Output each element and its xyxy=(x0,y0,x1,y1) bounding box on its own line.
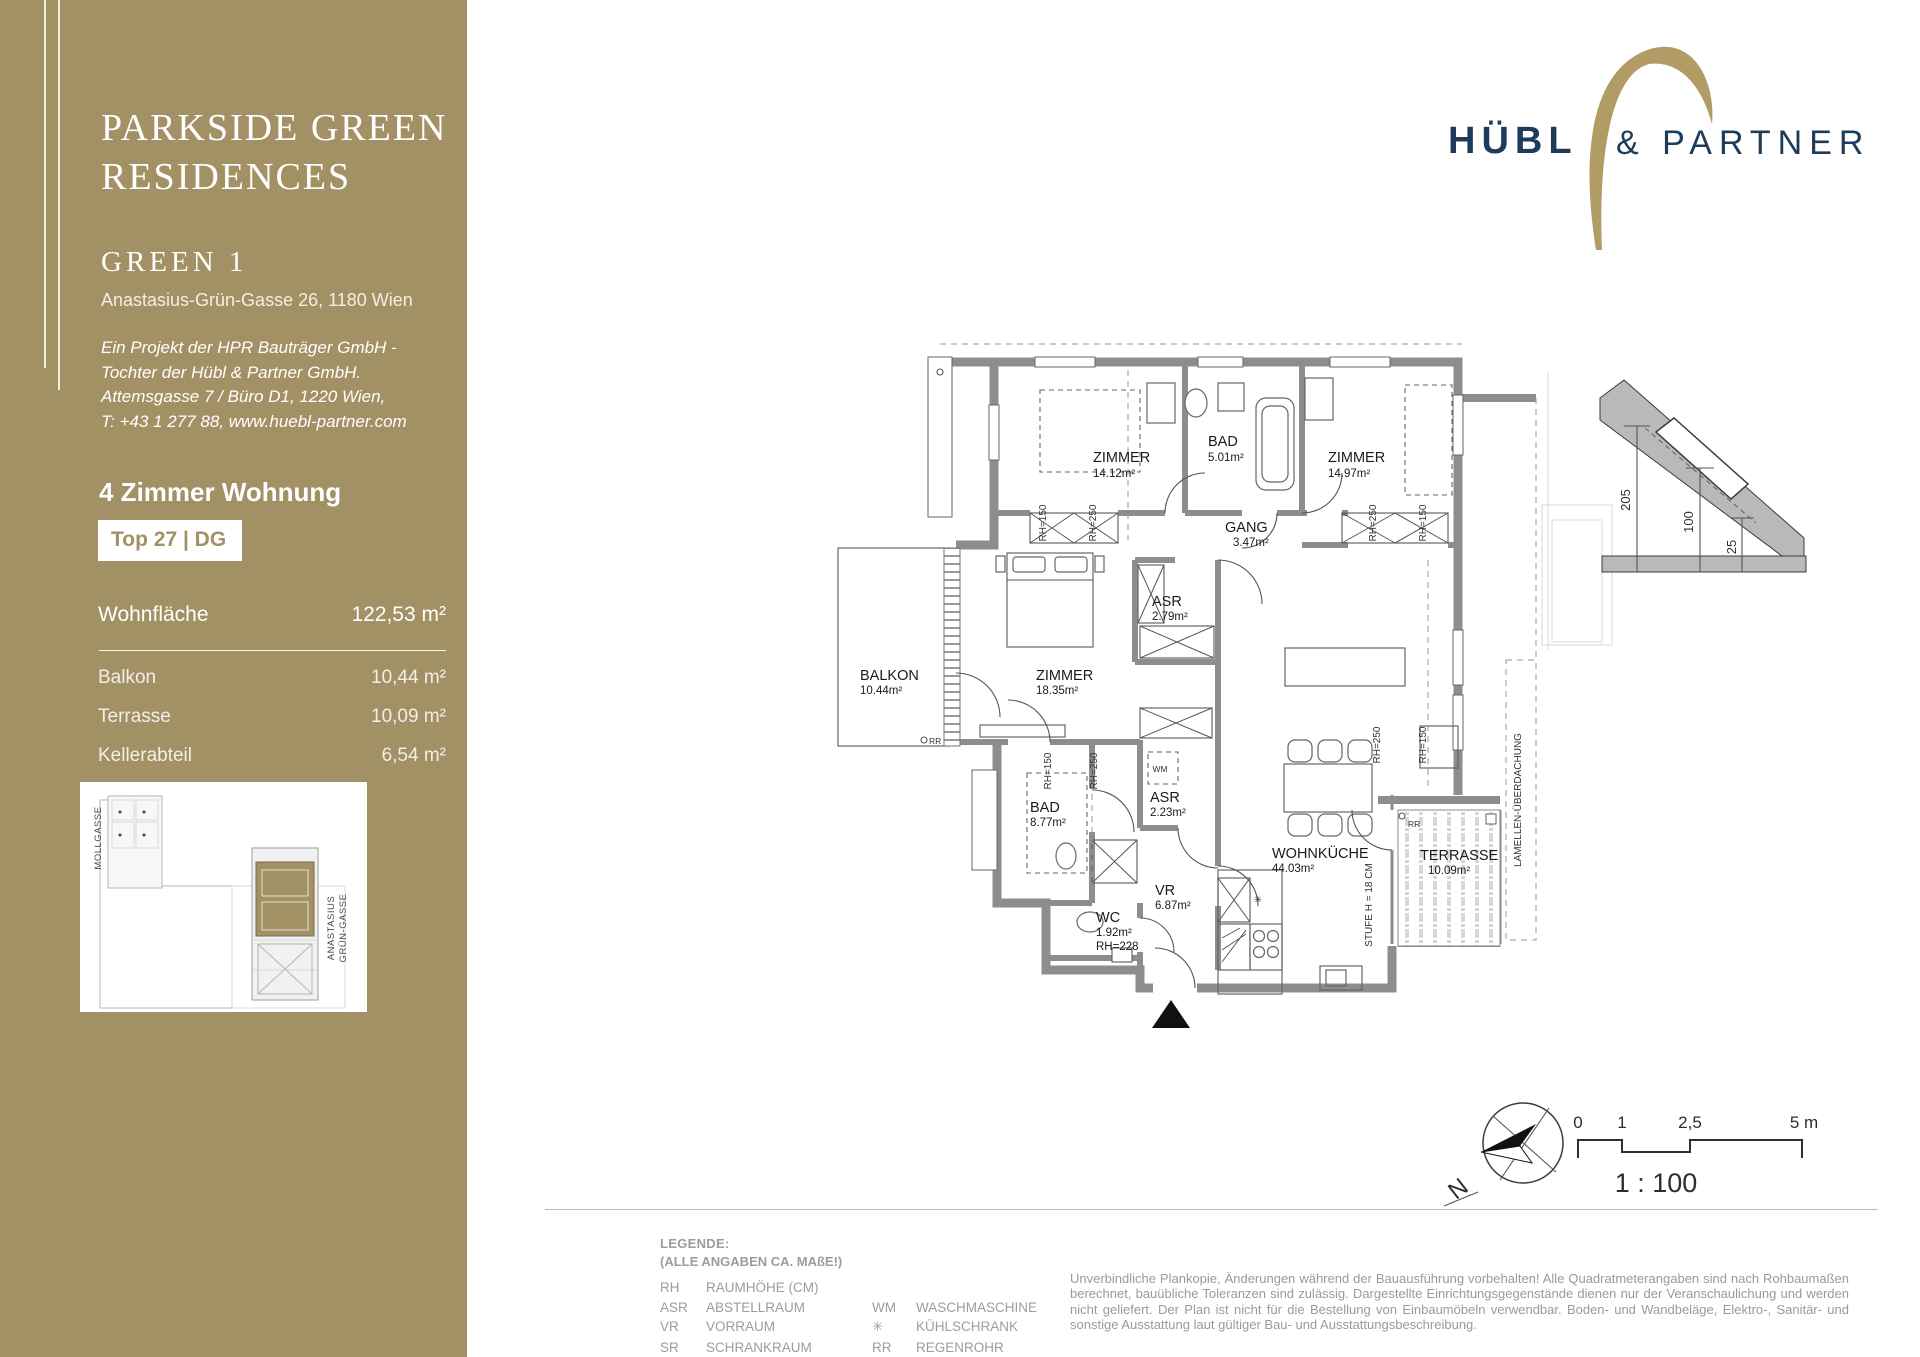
footer-divider xyxy=(545,1209,1878,1210)
terrace xyxy=(1398,660,1536,946)
legend-abbr: RH xyxy=(660,1280,706,1295)
furniture xyxy=(980,378,1458,994)
apartment-type: 4 Zimmer Wohnung xyxy=(99,477,341,508)
room-label: ASR xyxy=(1150,790,1180,806)
doors xyxy=(956,473,1392,994)
lamella-roof-annotation: LAMELLEN-ÜBERDACHUNG xyxy=(1512,733,1524,867)
legend-abbr: RR xyxy=(872,1340,916,1355)
rain-pipe-label: RR xyxy=(1408,819,1420,829)
room-label: ZIMMER xyxy=(1036,668,1093,684)
room-area: 44.03m² xyxy=(1272,863,1314,875)
legend-abbr: WM xyxy=(872,1300,916,1315)
legend-title: LEGENDE: xyxy=(660,1236,1037,1251)
unit-badge: Top 27 | DG xyxy=(98,520,242,561)
room-area: 10.44m² xyxy=(860,685,902,697)
rh-annotation: RH=250 xyxy=(1089,752,1100,789)
balcony xyxy=(838,548,960,746)
legend-term: KÜHLSCHRANK xyxy=(916,1319,1037,1335)
room-labels: ZIMMER 14.12m² BAD 5.01m² ZIMMER 14.97m²… xyxy=(860,434,1498,953)
room-label: ZIMMER xyxy=(1328,450,1385,466)
living-area-label: Wohnfläche xyxy=(98,603,209,627)
rh-annotation: RH=250 xyxy=(1088,504,1099,541)
roof-dim-205: 205 xyxy=(1618,489,1633,511)
wardrobes xyxy=(1030,513,1448,883)
north-label: N xyxy=(1443,1173,1473,1205)
scale-tick: 1 xyxy=(1617,1113,1626,1132)
living-area-value: 122,53 m² xyxy=(351,603,446,627)
windows xyxy=(989,357,1463,750)
area-list: Balkon 10,44 m² Terrasse 10,09 m² Keller… xyxy=(98,667,446,784)
room-area: 2.79m² xyxy=(1152,611,1188,623)
page-title: PARKSIDE GREEN RESIDENCES xyxy=(101,104,447,202)
rh-annotation: RH=150 xyxy=(1418,726,1429,763)
decorative-line xyxy=(58,0,60,390)
project-name: GREEN 1 xyxy=(101,246,247,279)
roof-section-detail: 205 100 25 xyxy=(1542,372,1806,650)
rh-annotation: RH=150 xyxy=(1038,504,1049,541)
legend-term: RAUMHÖHE (CM) xyxy=(706,1280,872,1295)
room-area: 3.47m² xyxy=(1233,537,1269,549)
rh-annotation: RH=150 xyxy=(1418,504,1429,541)
plan-annotations: RH=150 RH=250 RH=250 RH=150 RH=150 RH=25… xyxy=(929,504,1524,947)
legend-table: RH RAUMHÖHE (CM) ASR ABSTELLRAUM WM WASC… xyxy=(660,1280,1037,1355)
floor-plan: ZIMMER 14.12m² BAD 5.01m² ZIMMER 14.97m²… xyxy=(838,344,1536,1028)
guide-lines xyxy=(1092,370,1428,900)
room-area: 2.23m² xyxy=(1150,807,1186,819)
rh-annotation: RH=250 xyxy=(1372,726,1383,763)
scale-tick: 2,5 xyxy=(1678,1113,1702,1132)
room-area: 1.92m² xyxy=(1096,927,1132,939)
sidebar: PARKSIDE GREEN RESIDENCES GREEN 1 Anasta… xyxy=(0,0,467,1357)
area-label: Kellerabteil xyxy=(98,745,192,767)
room-area: 14.12m² xyxy=(1093,468,1135,480)
room-label: BAD xyxy=(1208,434,1238,450)
page-title-line2: RESIDENCES xyxy=(101,153,447,202)
legend-term: WASCHMASCHINE xyxy=(916,1300,1037,1315)
disclaimer-text: Unverbindliche Plankopie, Änderungen wäh… xyxy=(1070,1271,1849,1333)
legend-abbr: ✳ xyxy=(872,1319,916,1335)
developer-line: Tochter der Hübl & Partner GmbH. xyxy=(101,361,407,386)
scale-ratio: 1 : 100 xyxy=(1615,1168,1698,1198)
room-area: 8.77m² xyxy=(1030,817,1066,829)
area-label: Balkon xyxy=(98,667,156,689)
entry-marker xyxy=(1152,1000,1190,1028)
rh-annotation: RH=150 xyxy=(1043,752,1054,789)
scale-bar: 0 1 2,5 5 m 1 : 100 xyxy=(1573,1113,1818,1198)
area-row: Terrasse 10,09 m² xyxy=(98,706,446,728)
outer-walls xyxy=(930,344,1536,988)
room-height: RH=228 xyxy=(1096,941,1139,953)
legend-abbr: VR xyxy=(660,1319,706,1335)
room-label: VR xyxy=(1155,883,1175,899)
rh-annotation: RH=250 xyxy=(1368,504,1379,541)
legend-term: ABSTELLRAUM xyxy=(706,1300,872,1315)
legend-term: VORRAUM xyxy=(706,1319,872,1335)
scale-tick: 5 m xyxy=(1790,1113,1818,1132)
room-label: ZIMMER xyxy=(1093,450,1150,466)
rain-pipe-label: RR xyxy=(929,736,941,746)
room-area: 10.09m² xyxy=(1428,865,1470,877)
developer-line: Ein Projekt der HPR Bauträger GmbH - xyxy=(101,336,407,361)
roof-dim-25: 25 xyxy=(1724,540,1739,554)
room-area: 14.97m² xyxy=(1328,468,1370,480)
area-row: Balkon 10,44 m² xyxy=(98,667,446,689)
washing-machine-label: WM xyxy=(1152,764,1167,774)
room-label: BALKON xyxy=(860,668,919,684)
area-value: 6,54 m² xyxy=(382,745,446,767)
legend-term: REGENROHR xyxy=(916,1340,1037,1355)
room-area: 6.87m² xyxy=(1155,900,1191,912)
developer-line: T: +43 1 277 88, www.huebl-partner.com xyxy=(101,410,407,435)
room-label: TERRASSE xyxy=(1420,848,1498,864)
north-compass: N xyxy=(1443,1103,1563,1206)
legend-abbr xyxy=(872,1280,916,1295)
area-value: 10,44 m² xyxy=(371,667,446,689)
logo-wordmark-huebl: HÜBL xyxy=(1448,120,1578,163)
legend-term: SCHRANKRAUM xyxy=(706,1340,872,1355)
area-row: Kellerabteil 6,54 m² xyxy=(98,745,446,767)
area-value: 10,09 m² xyxy=(371,706,446,728)
developer-info: Ein Projekt der HPR Bauträger GmbH - Toc… xyxy=(101,336,407,434)
room-label: BAD xyxy=(1030,800,1060,816)
room-label: ASR xyxy=(1152,594,1182,610)
scale-tick: 0 xyxy=(1573,1113,1582,1132)
fridge-icon: ✳ xyxy=(1254,895,1262,906)
living-area-row: Wohnfläche 122,53 m² xyxy=(98,603,446,627)
project-address: Anastasius-Grün-Gasse 26, 1180 Wien xyxy=(101,290,413,311)
legend: LEGENDE: (ALLE ANGABEN CA. MAßE!) RH RAU… xyxy=(660,1236,1037,1355)
developer-line: Attemsgasse 7 / Büro D1, 1220 Wien, xyxy=(101,385,407,410)
room-area: 5.01m² xyxy=(1208,452,1244,464)
legend-abbr: SR xyxy=(660,1340,706,1355)
area-label: Terrasse xyxy=(98,706,171,728)
page-title-line1: PARKSIDE GREEN xyxy=(101,104,447,153)
divider-line xyxy=(99,650,446,651)
legend-subtitle: (ALLE ANGABEN CA. MAßE!) xyxy=(660,1254,1037,1269)
site-plan-box xyxy=(80,782,367,1012)
step-annotation: STUFE H = 18 CM xyxy=(1364,863,1375,947)
room-label: WOHNKÜCHE xyxy=(1272,844,1369,862)
roof-dim-100: 100 xyxy=(1681,511,1696,533)
legend-term xyxy=(916,1280,1037,1295)
room-label: GANG xyxy=(1225,520,1268,536)
legend-abbr: ASR xyxy=(660,1300,706,1315)
room-area: 18.35m² xyxy=(1036,685,1078,697)
logo-wordmark-partner: & PARTNER xyxy=(1616,124,1870,163)
decorative-line xyxy=(44,0,46,368)
interior-walls xyxy=(928,357,1458,970)
room-label: WC xyxy=(1096,910,1120,926)
